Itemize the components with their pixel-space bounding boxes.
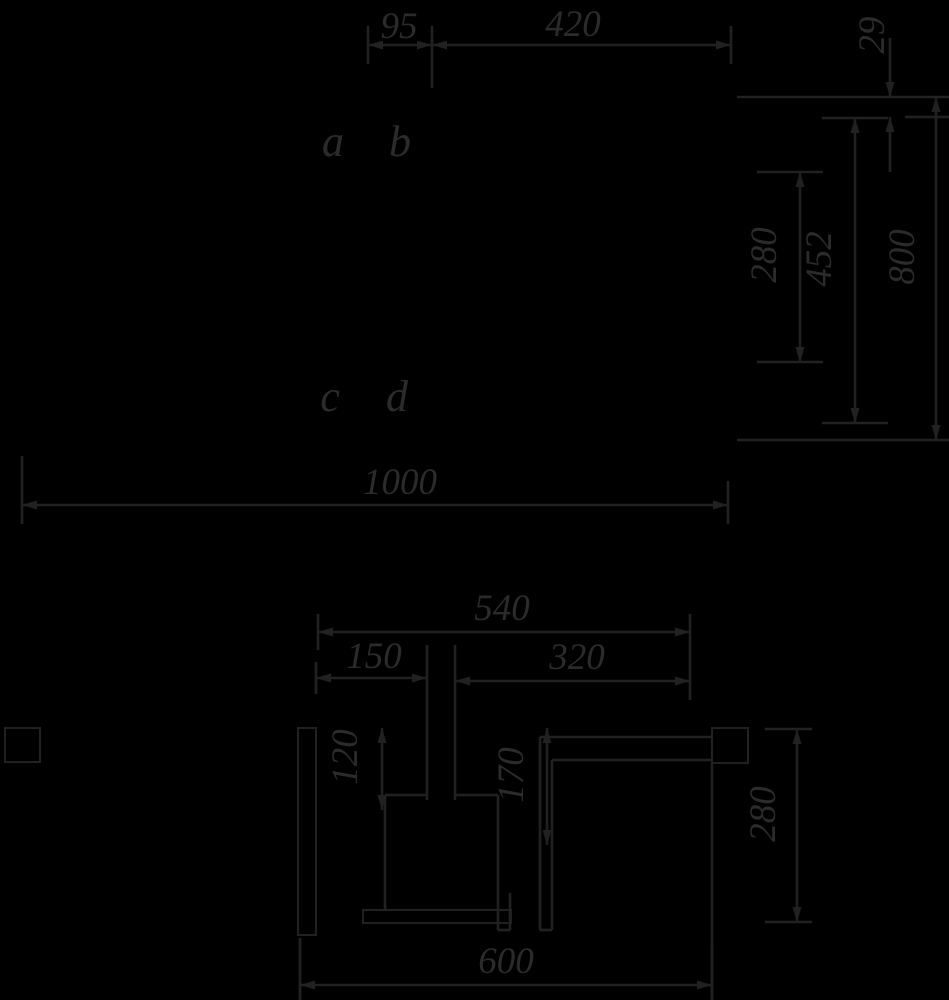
dim-150-label: 150 <box>346 636 402 677</box>
dim-120-label: 120 <box>325 729 366 785</box>
dim-offset-top: 29 <box>852 17 895 173</box>
dim-1000-label: 1000 <box>363 462 438 503</box>
dim-452-label: 452 <box>799 231 840 287</box>
dim-600-label: 600 <box>478 941 534 982</box>
point-c-label: c <box>320 372 340 421</box>
dim-170-label: 170 <box>491 747 532 803</box>
wall-sections <box>5 728 748 1000</box>
fixing-points: a b c d <box>320 117 411 421</box>
dim-420-label: 420 <box>545 4 601 45</box>
dim-depth-left: 120 <box>325 728 387 810</box>
dim-depth-mid: 170 <box>491 728 552 845</box>
dim-280-section-label: 280 <box>743 786 784 842</box>
drain-pipe <box>427 645 455 800</box>
dim-320-label: 320 <box>548 637 605 678</box>
technical-drawing: 95 420 a b c d 1000 <box>0 0 949 1000</box>
front-view: 95 420 a b c d 1000 <box>22 4 949 524</box>
dim-280-front-label: 280 <box>744 227 785 283</box>
wall-right <box>712 728 748 763</box>
section-view: 540 150 320 <box>5 588 812 1000</box>
dim-width-bottom: 600 <box>300 938 712 1000</box>
dim-540-label: 540 <box>474 588 530 629</box>
dim-29-label: 29 <box>852 17 893 54</box>
point-a-label: a <box>322 117 344 166</box>
dim-width-sub: 150 320 <box>316 636 690 694</box>
dim-width-total: 1000 <box>22 456 728 524</box>
point-d-label: d <box>386 372 409 421</box>
siphon-trap <box>363 737 712 930</box>
dim-800-label: 800 <box>882 229 923 285</box>
side-panel-left <box>298 728 316 935</box>
dim-height-mid: 452 <box>799 118 888 423</box>
dim-95-label: 95 <box>381 6 418 47</box>
dim-height-right-section: 280 <box>743 729 812 922</box>
dim-width-top: 95 420 <box>368 4 731 88</box>
wall-left-outer <box>5 728 40 762</box>
point-b-label: b <box>389 117 411 166</box>
drawing-canvas: 95 420 a b c d 1000 <box>0 0 949 1000</box>
